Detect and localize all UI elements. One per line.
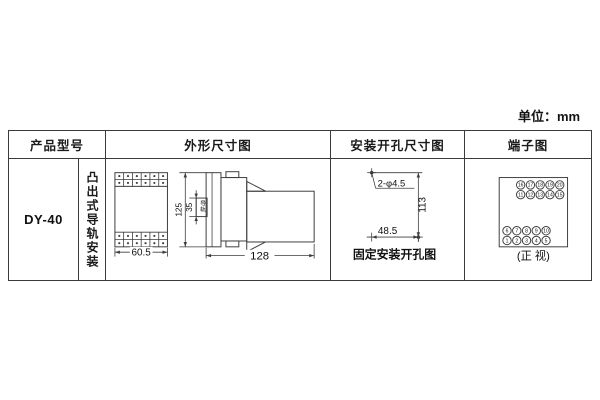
header-terminal-diagram: 端子图 [465,131,591,159]
terminal-diagram: 16 17 18 19 20 11 12 13 14 15 6 7 8 [466,160,590,280]
holes-caption: 固定安装开孔图 [353,247,436,261]
header-mounting-holes-diagram: 安装开孔尺寸图 [331,131,465,159]
outline-height-label: 125 [173,202,183,216]
terminal-number: 16 [518,182,524,188]
terminal-number: 17 [528,182,534,188]
hole-width-dimension: 48.5 [367,226,419,241]
terminal-number: 7 [515,228,518,234]
outline-depth-label: 128 [250,250,269,262]
terminal-number: 19 [547,182,553,188]
hole-width-label: 48.5 [378,226,398,237]
terminal-number: 14 [547,192,553,198]
width-dimension: 60.5 [115,246,168,258]
terminal-number: 1 [506,238,509,244]
terminals-drawing-cell: 16 17 18 19 20 11 12 13 14 15 6 7 8 [465,159,591,280]
spec-table: 产品型号 外形尺寸图 安装开孔尺寸图 端子图 DY-40 凸出式导轨安装 [8,130,592,281]
unit-label: 单位：mm [518,106,580,125]
terminal-number: 4 [535,238,538,244]
rail-width-label: 35 [184,202,194,212]
outline-width-label: 60.5 [132,247,152,258]
terminal-number: 6 [506,228,509,234]
product-model-value: DY-40 [9,159,79,280]
outline-drawing-cell: 60.5 125 35 [106,159,331,280]
terminal-number: 12 [528,192,534,198]
terminal-number: 8 [525,228,528,234]
terminal-number: 15 [557,192,563,198]
mounting-holes-drawing: 113 48.5 2-φ4.5 固定安装开孔图 [331,160,464,280]
terminal-number: 3 [525,238,528,244]
rail-slot-label: 导轨 [199,200,206,213]
terminals-caption: (正 视) [517,248,550,262]
datasheet-page: 单位：mm 产品型号 外形尺寸图 安装开孔尺寸图 端子图 DY-40 凸出式导轨… [0,0,600,400]
rail-slot-dimension: 35 导轨 [184,190,207,224]
terminal-number: 2 [515,238,518,244]
mounting-type-cell: 凸出式导轨安装 [79,159,106,280]
terminal-number: 10 [543,228,549,234]
terminal-number: 20 [557,182,563,188]
header-product-model: 产品型号 [9,131,106,159]
hole-height-dimension: 113 [417,172,429,241]
holes-drawing-cell: 113 48.5 2-φ4.5 固定安装开孔图 [331,159,465,280]
hole-height-label: 113 [417,196,428,212]
outline-dimension-drawing: 60.5 125 35 [106,160,330,280]
terminal-number: 5 [545,238,548,244]
front-view [115,172,168,246]
hole-callout: 2-φ4.5 [372,172,415,188]
side-view [206,171,314,251]
terminal-number: 9 [535,228,538,234]
terminal-number: 18 [537,182,543,188]
terminal-group-top: 16 17 18 19 20 11 12 13 14 15 [516,180,563,198]
terminal-number: 11 [518,192,523,198]
mounting-type-label: 凸出式导轨安装 [86,171,98,269]
terminal-group-bottom: 6 7 8 9 10 1 2 3 4 5 [503,226,550,244]
header-outline-diagram: 外形尺寸图 [106,131,331,159]
terminal-number: 13 [537,192,543,198]
depth-dimension: 128 [206,243,314,262]
hole-size-label: 2-φ4.5 [378,178,406,188]
